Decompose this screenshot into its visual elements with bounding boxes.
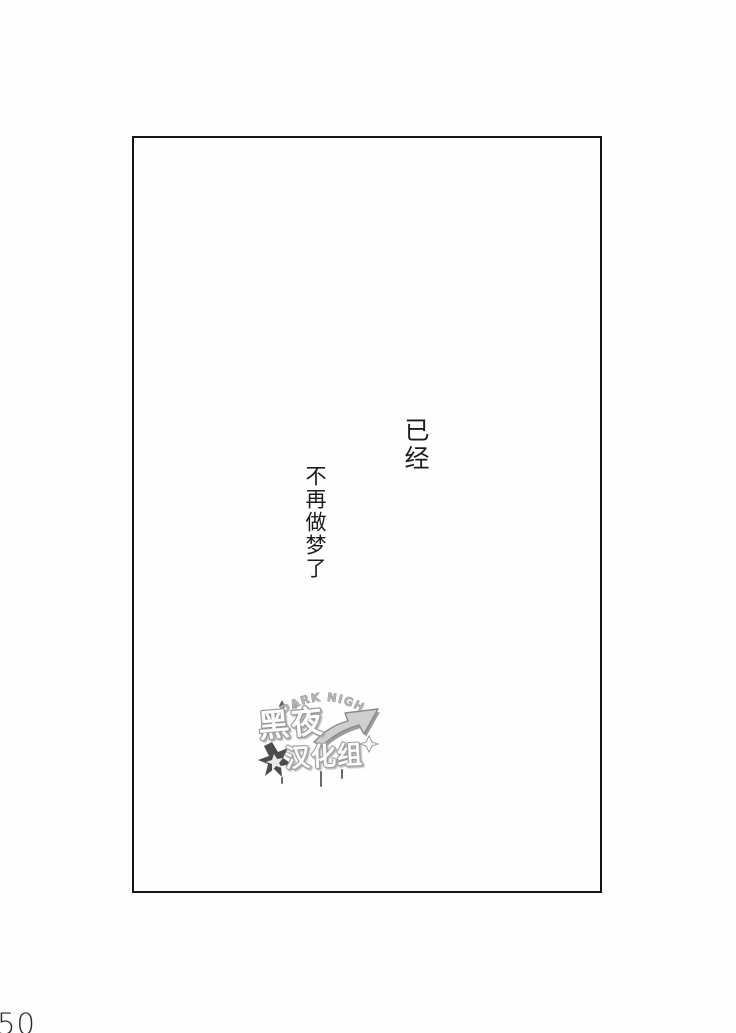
watermark-subtitle: 汉化组: [284, 740, 363, 773]
manga-page: 已经 不再做梦了 DARK N: [0, 0, 736, 1033]
dialogue-text-2: 不再做梦了: [304, 465, 325, 580]
translation-group-watermark: DARK NIGHT 黑夜 汉化组: [252, 686, 384, 788]
watermark-title: 黑夜: [257, 704, 326, 746]
page-number: 50: [0, 1007, 36, 1033]
dialogue-text-1: 已经: [403, 417, 428, 473]
